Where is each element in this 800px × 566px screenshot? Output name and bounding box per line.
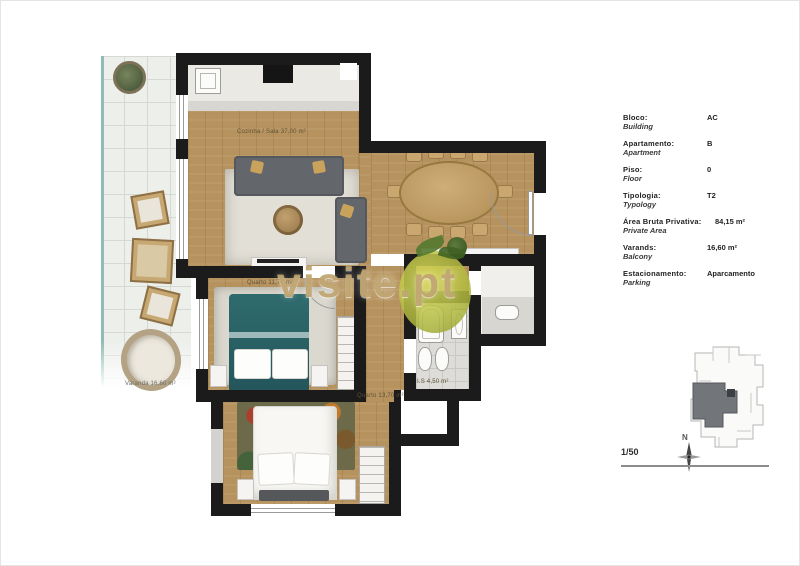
info-row-area: Área Bruta Privativa: Private Area 84,15… (623, 218, 795, 235)
coffee-table (273, 205, 303, 235)
kitchen-sink-icon (195, 68, 221, 94)
info-value: 16,60 m² (707, 244, 737, 253)
nightstand (311, 365, 328, 387)
pillow (234, 349, 271, 379)
bed-bench (259, 490, 329, 501)
info-sublabel: Typology (623, 201, 795, 210)
sofa-pillow (312, 160, 326, 174)
wall-notch (340, 63, 357, 80)
bidet-icon (435, 347, 449, 371)
info-value: 0 (707, 166, 711, 175)
info-value: AC (707, 114, 718, 123)
floor-plan-page: Varanda 16,60 m² Cozinha / Sala 37,00 m²… (0, 0, 800, 566)
dining-chair (472, 223, 488, 236)
pillow (257, 452, 295, 486)
wardrobe (359, 446, 385, 504)
laundry-sink-icon (495, 305, 519, 320)
balcony-table (130, 238, 174, 284)
toilet-icon (418, 347, 432, 371)
balcony-label: Varanda 16,60 m² (125, 381, 176, 388)
balcony-sliding-door (176, 159, 188, 259)
wall (359, 53, 371, 153)
info-value: 84,15 m² (715, 218, 745, 227)
nightstand (210, 365, 227, 387)
wall (389, 390, 401, 516)
north-arrow-icon (673, 441, 705, 473)
info-row-piso: Piso: Floor 0 (623, 166, 795, 183)
watermark: visite.pt (277, 259, 458, 308)
info-sublabel: Floor (623, 175, 795, 184)
nightstand (339, 479, 356, 500)
dining-table (399, 161, 499, 225)
bedroom2-label: Quarto 13,70 m² (357, 393, 404, 400)
info-sublabel: Parking (623, 279, 795, 288)
sofa-pillow (250, 160, 264, 174)
info-row-bloco: Bloco: Building AC (623, 114, 795, 131)
info-sublabel: Private Area (623, 227, 795, 236)
wall (469, 334, 546, 346)
cooktop-icon (263, 65, 293, 83)
info-value: Aparcamento (707, 270, 755, 279)
balcony-window (176, 95, 188, 139)
bed-fold (229, 332, 309, 338)
wall (359, 141, 546, 153)
info-panel: Bloco: Building AC Apartamento: Apartmen… (623, 114, 795, 296)
dining-chair (406, 223, 422, 236)
info-row-apartamento: Apartamento: Apartment B (623, 140, 795, 157)
info-value: B (707, 140, 712, 149)
info-sublabel: Building (623, 123, 795, 132)
scale-label: 1/50 (621, 447, 639, 457)
pillow (272, 349, 308, 379)
legend-divider (621, 465, 769, 467)
bathroom-door-gap (404, 339, 416, 373)
info-row-estacionamento: Estacionamento: Parking Aparcamento (623, 270, 795, 287)
bedroom1-window (196, 299, 208, 369)
info-sublabel: Balcony (623, 253, 795, 262)
plant-pot-icon (113, 61, 146, 94)
info-row-varanda: Varands: Balcony 16,60 m² (623, 244, 795, 261)
info-sublabel: Apartment (623, 149, 795, 158)
wall (399, 434, 459, 446)
kitchen-counter-edge (188, 101, 359, 111)
info-row-tipologia: Tipologia: Typology T2 (623, 192, 795, 209)
site-plan-minimap (685, 341, 769, 453)
sofa (234, 156, 344, 196)
bathroom-label: I.S 4,50 m² (417, 379, 449, 386)
wall (404, 389, 481, 401)
pillow (293, 452, 331, 486)
living-room-label: Cozinha / Sala 37,00 m² (237, 129, 306, 136)
bedroom2-side-window (211, 429, 223, 483)
entrance-door-gap (534, 193, 546, 235)
entrance-door-leaf (528, 191, 533, 235)
balcony-chair (130, 190, 169, 229)
info-value: T2 (707, 192, 716, 201)
bedroom2-window (251, 504, 335, 516)
nightstand (237, 479, 254, 500)
